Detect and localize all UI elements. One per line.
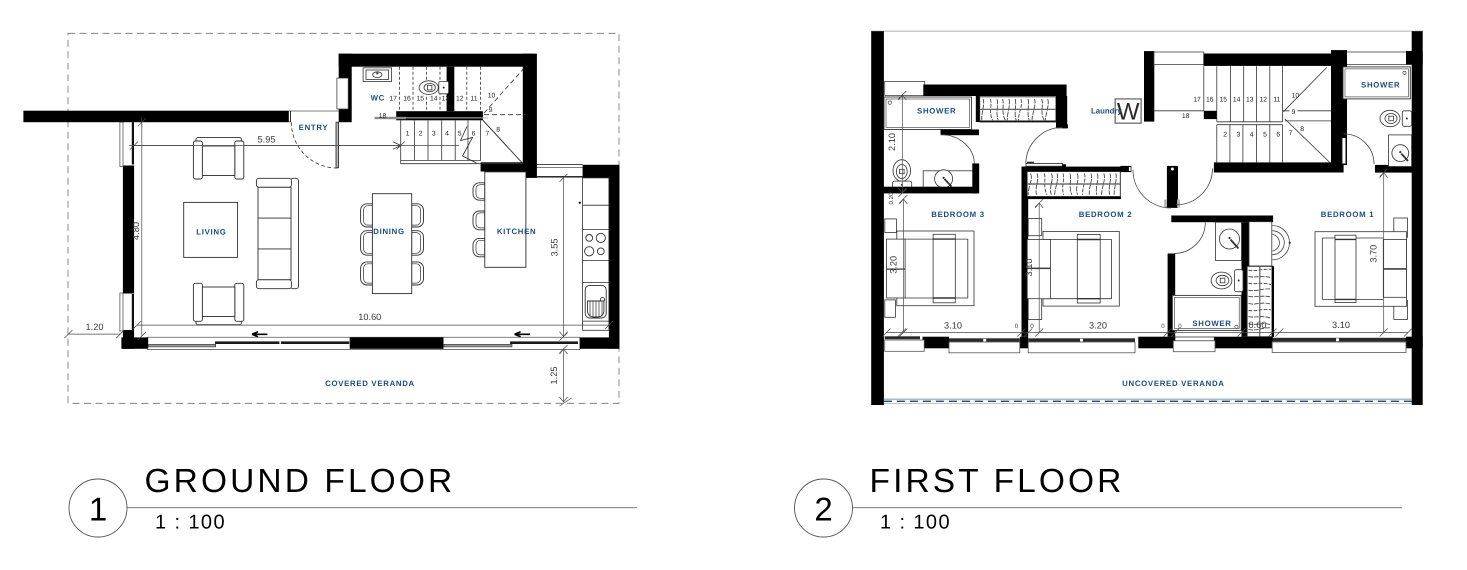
svg-text:ENTRY: ENTRY	[299, 123, 329, 132]
svg-text:5.95: 5.95	[258, 135, 276, 145]
svg-text:12: 12	[456, 96, 464, 103]
svg-text:8: 8	[496, 126, 500, 133]
svg-text:SHOWER: SHOWER	[917, 107, 956, 116]
svg-text:0: 0	[1030, 323, 1034, 330]
svg-text:12: 12	[1260, 97, 1268, 104]
svg-text:1: 1	[89, 491, 107, 528]
svg-text:14: 14	[1233, 97, 1241, 104]
svg-text:18: 18	[379, 113, 387, 120]
svg-text:2: 2	[1223, 131, 1227, 138]
svg-text:7: 7	[486, 130, 490, 137]
svg-text:8: 8	[1300, 126, 1304, 133]
svg-text:3.70: 3.70	[1369, 245, 1379, 263]
svg-text:WC: WC	[371, 94, 385, 103]
svg-text:0: 0	[1178, 323, 1182, 330]
svg-text:4: 4	[1250, 131, 1254, 138]
svg-text:9: 9	[489, 107, 493, 114]
svg-text:SHOWER: SHOWER	[1361, 80, 1400, 89]
svg-text:FIRST FLOOR: FIRST FLOOR	[870, 463, 1125, 500]
svg-text:9: 9	[1292, 109, 1296, 116]
svg-text:3: 3	[1237, 131, 1241, 138]
svg-text:5: 5	[1263, 131, 1267, 138]
svg-text:11: 11	[470, 96, 477, 103]
svg-text:0.60: 0.60	[1249, 320, 1267, 330]
svg-text:15: 15	[417, 96, 425, 103]
svg-text:SHOWER: SHOWER	[1192, 319, 1231, 328]
svg-text:3.20: 3.20	[1089, 320, 1107, 330]
svg-text:1 : 100: 1 : 100	[880, 512, 951, 534]
svg-text:10: 10	[1292, 93, 1300, 100]
svg-text:Laundry: Laundry	[1091, 107, 1122, 116]
svg-text:4: 4	[445, 130, 449, 137]
svg-text:7: 7	[1289, 130, 1293, 137]
svg-text:3: 3	[432, 130, 436, 137]
svg-text:2: 2	[814, 491, 832, 528]
svg-text:17: 17	[390, 96, 398, 103]
svg-text:0: 0	[1161, 323, 1165, 330]
svg-text:10.60: 10.60	[358, 312, 381, 322]
svg-text:14: 14	[430, 96, 438, 103]
svg-text:10: 10	[488, 92, 496, 99]
svg-text:3.20: 3.20	[888, 256, 898, 274]
svg-text:13: 13	[1246, 97, 1254, 104]
svg-text:5: 5	[458, 130, 462, 137]
svg-text:1: 1	[406, 130, 410, 137]
svg-text:16: 16	[403, 96, 411, 103]
svg-text:DINING: DINING	[373, 227, 405, 236]
svg-text:3.10: 3.10	[1332, 320, 1350, 330]
svg-text:11: 11	[1273, 97, 1280, 104]
svg-text:LIVING: LIVING	[196, 227, 226, 236]
svg-text:KITCHEN: KITCHEN	[497, 227, 537, 236]
svg-text:6: 6	[472, 130, 476, 137]
svg-text:1.20: 1.20	[86, 322, 104, 332]
svg-text:1 : 100: 1 : 100	[155, 512, 226, 534]
svg-text:COVERED VERANDA: COVERED VERANDA	[325, 379, 415, 388]
svg-text:3.10: 3.10	[1024, 259, 1034, 277]
svg-text:BEDROOM 1: BEDROOM 1	[1321, 210, 1375, 219]
svg-text:GROUND FLOOR: GROUND FLOOR	[145, 463, 456, 500]
svg-text:16: 16	[1206, 97, 1214, 104]
svg-text:2: 2	[419, 130, 423, 137]
svg-text:3.55: 3.55	[550, 239, 560, 257]
svg-text:0.20: 0.20	[888, 192, 895, 205]
svg-text:18: 18	[1182, 113, 1190, 120]
svg-text:4.80: 4.80	[131, 222, 141, 240]
svg-text:BEDROOM 3: BEDROOM 3	[931, 210, 985, 219]
svg-text:3.10: 3.10	[944, 320, 962, 330]
svg-text:6: 6	[1276, 131, 1280, 138]
svg-text:BEDROOM 2: BEDROOM 2	[1079, 210, 1133, 219]
svg-text:17: 17	[1193, 97, 1201, 104]
svg-text:2.10: 2.10	[887, 133, 897, 151]
svg-text:1.25: 1.25	[549, 367, 559, 385]
svg-text:15: 15	[1220, 97, 1228, 104]
svg-text:UNCOVERED VERANDA: UNCOVERED VERANDA	[1122, 379, 1224, 388]
svg-text:13: 13	[442, 96, 450, 103]
svg-text:0: 0	[1015, 323, 1019, 330]
